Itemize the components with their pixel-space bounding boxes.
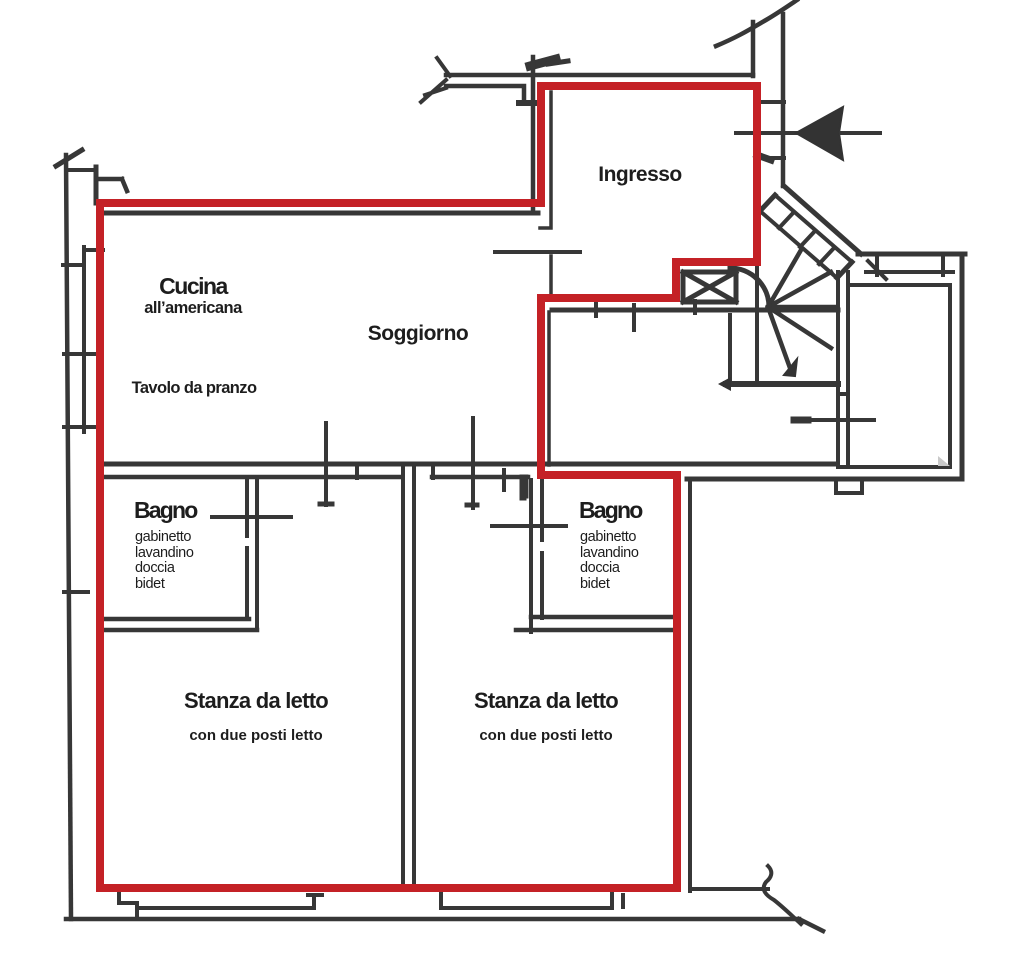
svg-text:gabinetto: gabinetto xyxy=(580,529,636,545)
svg-text:con due posti letto: con due posti letto xyxy=(479,727,612,744)
svg-text:bidet: bidet xyxy=(580,576,610,592)
svg-text:Stanza da letto: Stanza da letto xyxy=(184,688,328,713)
svg-text:Bagno: Bagno xyxy=(579,497,643,523)
svg-text:Cucina: Cucina xyxy=(159,273,228,299)
svg-text:Soggiorno: Soggiorno xyxy=(368,322,468,345)
svg-text:doccia: doccia xyxy=(135,560,176,576)
svg-text:Tavolo da pranzo: Tavolo da pranzo xyxy=(132,379,257,397)
svg-text:Stanza da letto: Stanza da letto xyxy=(474,688,618,713)
svg-text:bidet: bidet xyxy=(135,576,165,592)
svg-text:Bagno: Bagno xyxy=(134,497,198,523)
svg-text:Ingresso: Ingresso xyxy=(598,163,682,186)
svg-text:all’americana: all’americana xyxy=(144,299,243,317)
svg-text:gabinetto: gabinetto xyxy=(135,529,191,545)
svg-text:lavandino: lavandino xyxy=(135,545,194,561)
svg-text:lavandino: lavandino xyxy=(580,545,639,561)
svg-text:doccia: doccia xyxy=(580,560,621,576)
svg-text:con due posti letto: con due posti letto xyxy=(189,727,322,744)
